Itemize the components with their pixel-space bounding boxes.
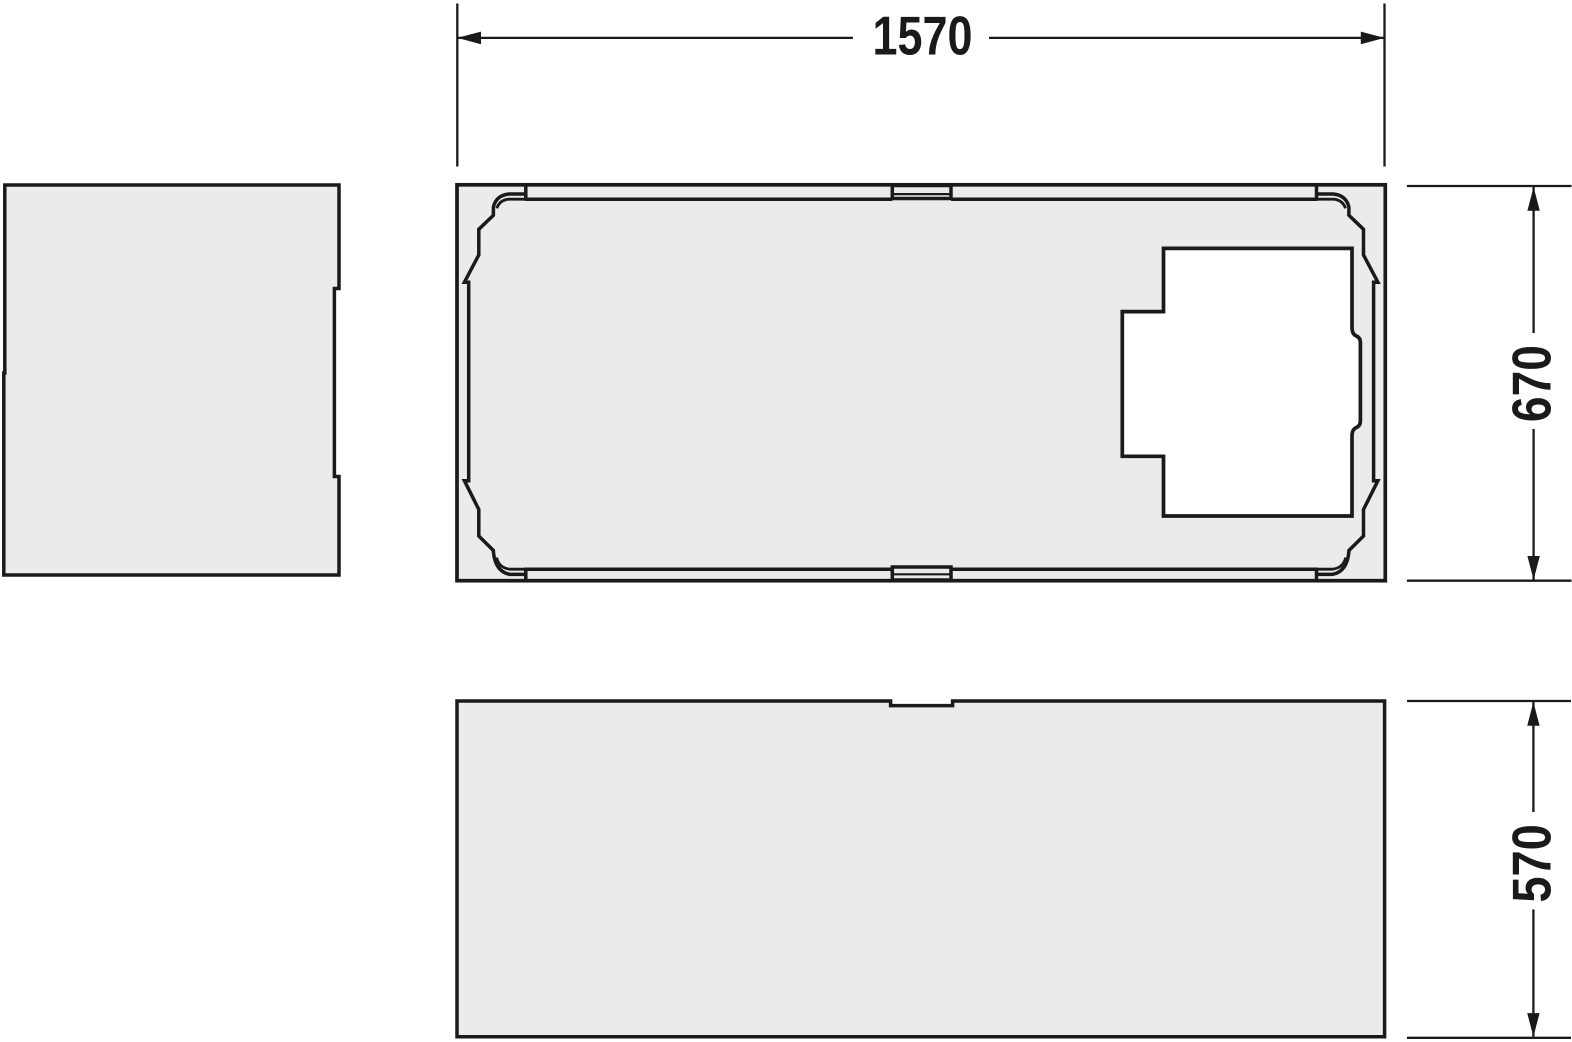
svg-text:670: 670 [1502, 345, 1563, 422]
svg-text:1570: 1570 [873, 6, 973, 67]
svg-text:570: 570 [1502, 824, 1563, 903]
